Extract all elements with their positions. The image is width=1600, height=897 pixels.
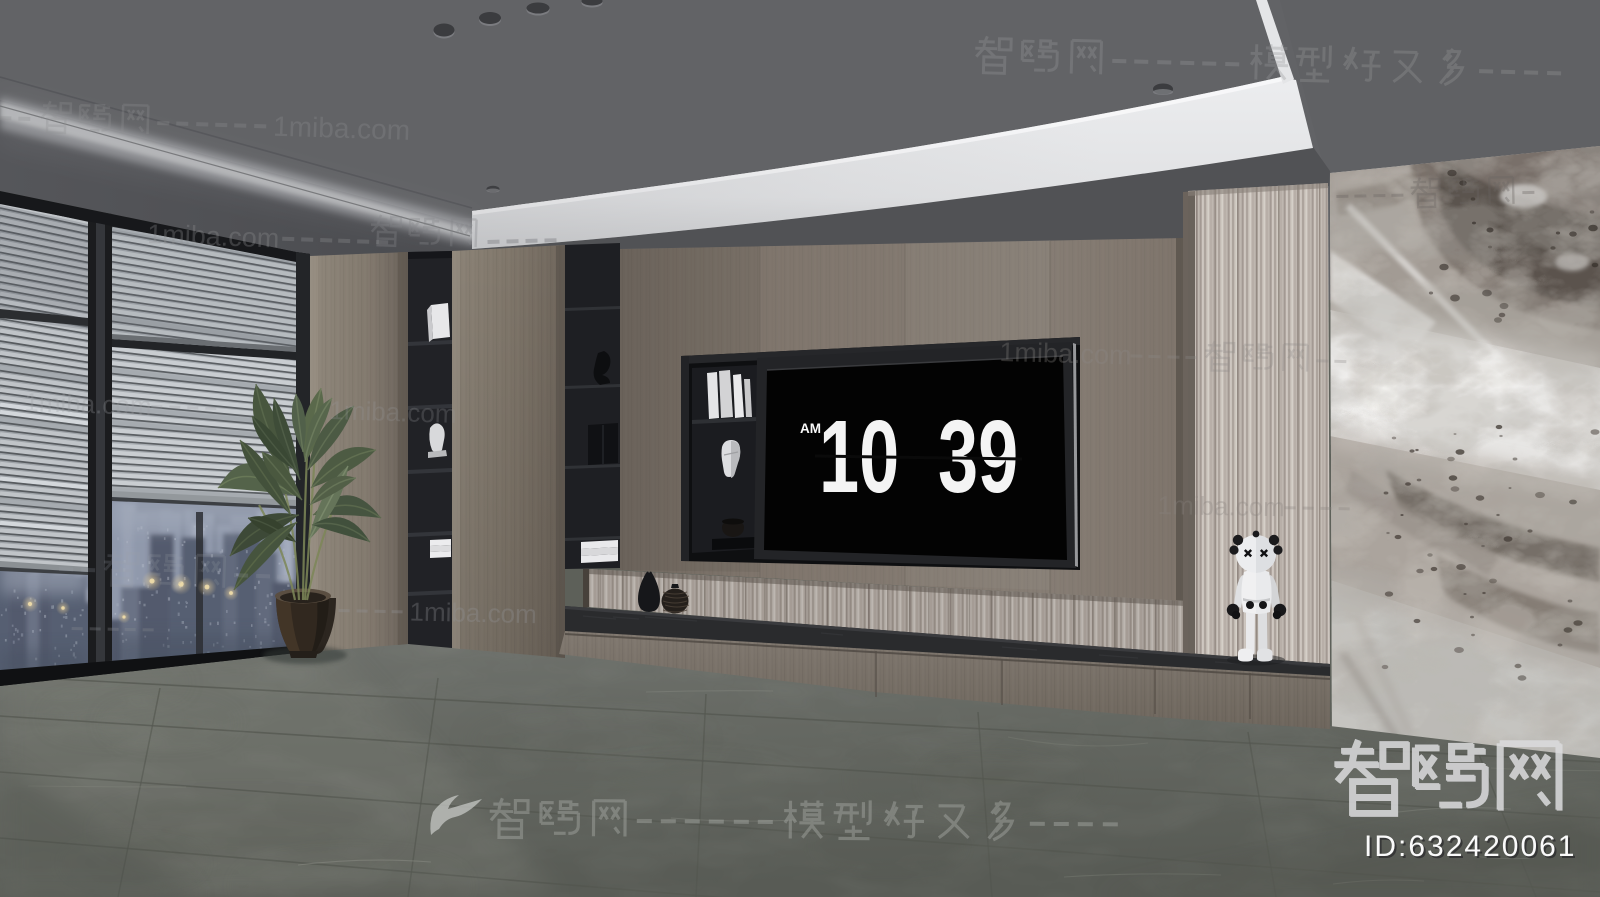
svg-text:ID:632420061: ID:632420061 bbox=[1364, 830, 1577, 863]
svg-text:AM: AM bbox=[800, 421, 821, 436]
svg-text:1miba.com: 1miba.com bbox=[329, 395, 457, 429]
svg-text:1miba.com: 1miba.com bbox=[999, 337, 1132, 370]
svg-text:1miba.com: 1miba.com bbox=[409, 596, 537, 629]
svg-text:1miba.com: 1miba.com bbox=[273, 111, 411, 146]
svg-text:1miba.com: 1miba.com bbox=[24, 387, 152, 421]
svg-text:1miba.com: 1miba.com bbox=[1157, 490, 1285, 522]
svg-text:1miba.com: 1miba.com bbox=[147, 219, 280, 254]
